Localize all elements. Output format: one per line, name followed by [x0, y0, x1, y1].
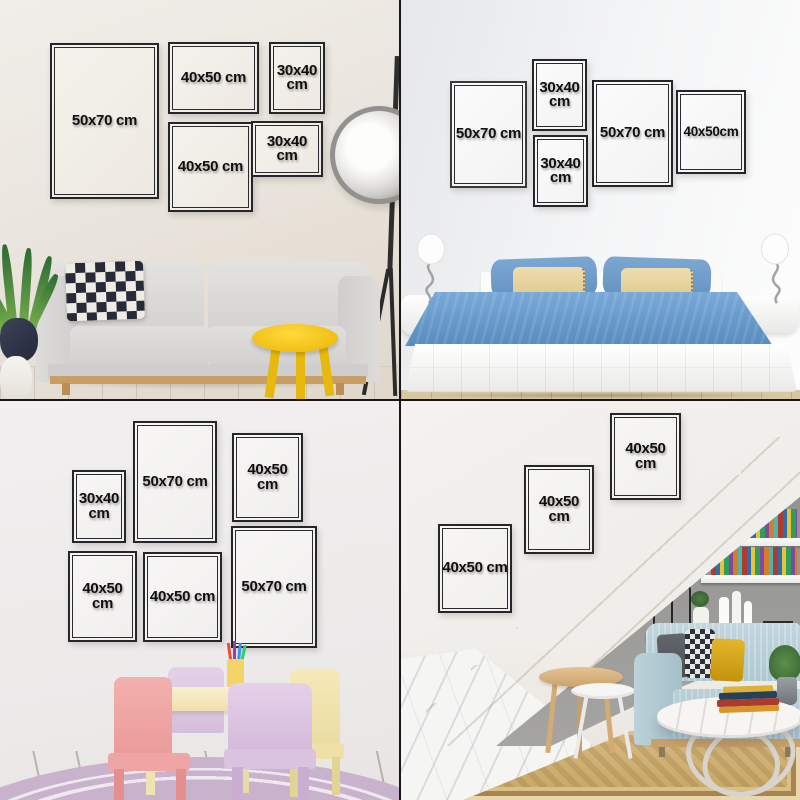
- sofa-leg: [336, 383, 344, 395]
- pencil: [233, 641, 236, 661]
- chair-leg: [332, 757, 340, 795]
- sofa-leg: [659, 747, 665, 757]
- blue-mattress: [401, 292, 800, 346]
- frame-size-label: 30x40 cm: [535, 155, 586, 188]
- frame-40x50: 40x50 cm: [68, 551, 137, 642]
- frame-size-label: 40x50 cm: [234, 461, 301, 494]
- lamp-dome-shade: [330, 106, 399, 204]
- sofa-wood-rail: [50, 376, 366, 384]
- frame-size-label: 40x50 cm: [612, 440, 679, 473]
- frame-size-label: 50x70 cm: [70, 112, 139, 130]
- frame-size-label: 40x50 cm: [179, 69, 248, 87]
- chair-leg: [114, 769, 124, 800]
- plant-sprig: [691, 591, 709, 607]
- frame-size-label: 40x50 cm: [148, 588, 217, 606]
- chair-leg: [232, 767, 243, 800]
- frame-50x70: 50x70 cm: [592, 80, 673, 187]
- frame-40x50: 40x50 cm: [438, 524, 512, 613]
- frame-size-label: 30x40 cm: [74, 490, 124, 523]
- sofa-seat-cushion: [70, 326, 210, 366]
- yellow-pillow: [710, 638, 745, 682]
- frame-size-label: 40x50 cm: [526, 493, 592, 526]
- frame-40x50: 40x50 cm: [168, 122, 253, 212]
- bed-platform: [405, 344, 797, 392]
- sofa-leg: [62, 383, 70, 395]
- frame-50x70: 50x70 cm: [133, 421, 217, 543]
- frame-size-label: 40x50 cm: [440, 559, 509, 577]
- chair-seat: [224, 749, 316, 769]
- frame-mockup-collage: 50x70 cm 40x50 cm 30x40 cm 40x50 cm 30x4…: [0, 0, 800, 800]
- shelf: [701, 575, 800, 583]
- chair-leg: [176, 769, 186, 800]
- frame-size-label: 50x70 cm: [454, 125, 523, 143]
- scene-kids-room: 30x40 cm 50x70 cm 40x50 cm 40x50 cm 40x5…: [0, 401, 399, 800]
- stone-vase: [777, 677, 797, 705]
- scene-bedroom: 50x70 cm 30x40 cm 30x40 cm 50x70 cm 40x5…: [401, 0, 800, 399]
- frame-30x40: 30x40 cm: [533, 135, 588, 207]
- frame-size-label: 50x70 cm: [239, 578, 308, 596]
- frame-size-label: 40x50 cm: [70, 580, 135, 613]
- frame-50x70: 50x70 cm: [50, 43, 159, 199]
- frame-40x50: 40x50 cm: [524, 465, 594, 554]
- kids-chair-lilac-front: [228, 683, 312, 755]
- frame-50x70: 50x70 cm: [450, 81, 527, 188]
- plant-foliage: [769, 645, 800, 681]
- frame-40x50: 40x50 cm: [610, 413, 681, 500]
- triangle-pattern-pillow: [65, 261, 145, 322]
- frame-40x50: 40x50 cm: [168, 42, 259, 114]
- table-lamp: [753, 232, 797, 304]
- potted-plant: [0, 244, 46, 399]
- frame-30x40: 30x40 cm: [532, 59, 587, 131]
- frame-size-label: 40x50cm: [682, 124, 741, 141]
- frame-size-label: 30x40 cm: [253, 133, 321, 166]
- frame-size-label: 30x40 cm: [534, 79, 585, 112]
- frame-size-label: 40x50 cm: [176, 158, 245, 176]
- shelf: [741, 538, 800, 546]
- white-side-table-top: [571, 683, 635, 699]
- frame-size-label: 50x70 cm: [598, 124, 667, 142]
- scene-staircase-room: 40x50 cm 40x50 cm 40x50 cm: [401, 401, 800, 800]
- frame-40x50: 40x50 cm: [232, 433, 303, 522]
- bed-shadow: [411, 392, 791, 399]
- frame-size-label: 30x40 cm: [271, 62, 323, 95]
- frame-30x40: 30x40 cm: [251, 121, 323, 177]
- stool-top: [252, 324, 338, 352]
- frame-40x50: 40x50cm: [676, 90, 746, 174]
- white-vase: [0, 356, 32, 399]
- frame-size-label: 50x70 cm: [140, 473, 209, 491]
- frame-40x50: 40x50 cm: [143, 552, 222, 642]
- chair-leg: [298, 767, 309, 800]
- frame-30x40: 30x40 cm: [72, 470, 126, 543]
- stool-leg: [296, 352, 305, 399]
- frame-50x70: 50x70 cm: [231, 526, 317, 648]
- frame-30x40: 30x40 cm: [269, 42, 325, 114]
- kids-chair-pink: [114, 677, 172, 761]
- scene-living-room: 50x70 cm 40x50 cm 30x40 cm 40x50 cm 30x4…: [0, 0, 399, 399]
